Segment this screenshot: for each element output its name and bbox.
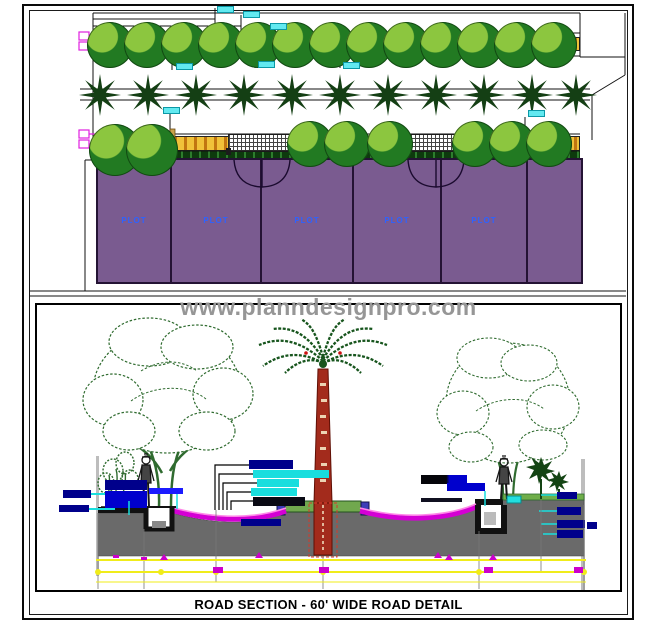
palm-star-icon — [555, 74, 597, 116]
palm-star-icon — [319, 74, 361, 116]
label-chip — [217, 6, 234, 13]
label-chip — [176, 63, 193, 70]
palm-star-icon — [175, 74, 217, 116]
plan-tree-icon — [531, 22, 577, 68]
watermark: www.planndesignpro.com — [180, 294, 476, 321]
label-chip — [343, 62, 360, 69]
label-chip — [528, 110, 545, 117]
palm-fruit — [338, 351, 342, 355]
palm-crown — [319, 360, 327, 368]
section-panel — [35, 303, 622, 592]
deciduous-tree-left — [83, 318, 253, 507]
palm-star-icon — [223, 74, 265, 116]
drain-box-left — [142, 507, 176, 529]
palm-star-icon — [415, 74, 457, 116]
plan-tree-icon — [526, 121, 572, 167]
bench — [507, 496, 521, 503]
label-chip — [163, 107, 180, 114]
palm-star-icon — [367, 74, 409, 116]
sidewalk-right — [475, 499, 503, 505]
label-chip — [243, 11, 260, 18]
palm-star-icon — [463, 74, 505, 116]
cad-sheet: PLOT PLOT PLOT PLOT PLOT www.planndesign… — [0, 0, 657, 627]
palm-fruit — [304, 351, 308, 355]
plan-tree-icon — [126, 124, 178, 176]
label-chip — [270, 23, 287, 30]
palm-star-icon — [79, 74, 121, 116]
palm-star-icon — [271, 74, 313, 116]
page-title: ROAD SECTION - 60' WIDE ROAD DETAIL — [30, 597, 627, 612]
plan-tree-icon — [367, 121, 413, 167]
road-section-drawing — [37, 305, 620, 590]
drain-box-right — [478, 505, 504, 531]
label-chip — [258, 61, 275, 68]
dimension-lines — [95, 560, 587, 582]
plan-tree-icon — [324, 121, 370, 167]
